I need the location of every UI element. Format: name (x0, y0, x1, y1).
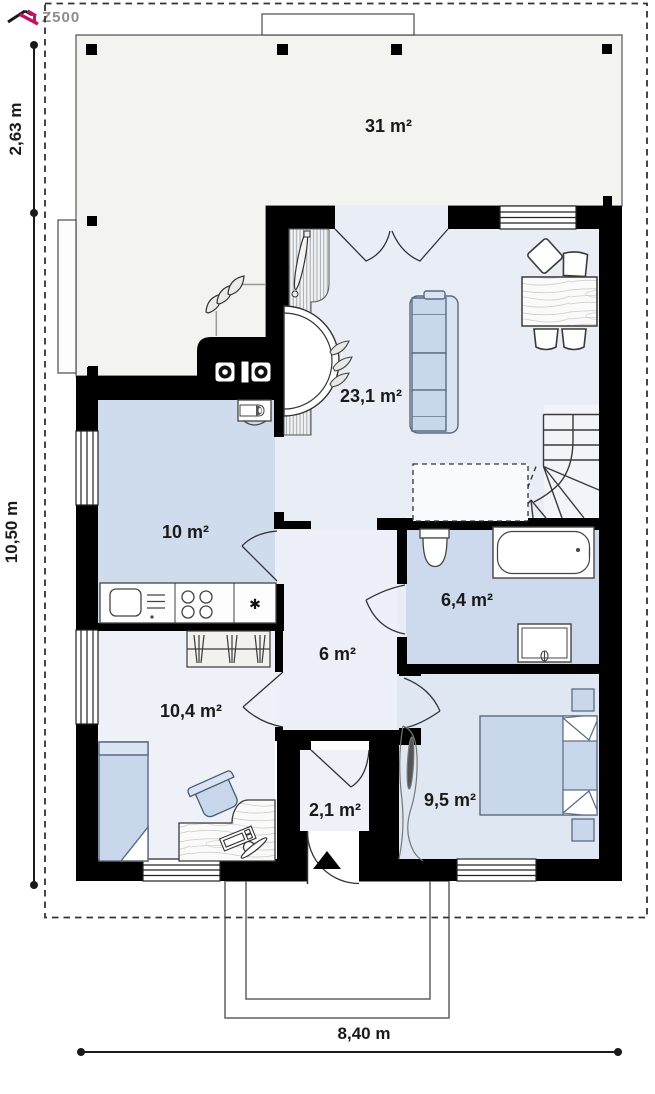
svg-text:✱: ✱ (249, 596, 261, 612)
svg-text:6 m²: 6 m² (319, 644, 356, 664)
svg-text:10 m²: 10 m² (162, 522, 209, 542)
svg-text:2,1 m²: 2,1 m² (309, 800, 361, 820)
svg-text:10,4 m²: 10,4 m² (160, 701, 222, 721)
svg-text:Z500: Z500 (42, 9, 80, 26)
svg-text:2,63 m: 2,63 m (6, 103, 25, 156)
svg-text:31 m²: 31 m² (365, 116, 412, 136)
svg-text:6,4 m²: 6,4 m² (441, 590, 493, 610)
svg-text:9,5 m²: 9,5 m² (424, 790, 476, 810)
svg-text:23,1 m²: 23,1 m² (340, 386, 402, 406)
svg-text:8,40 m: 8,40 m (338, 1024, 391, 1043)
svg-text:10,50 m: 10,50 m (2, 501, 21, 563)
